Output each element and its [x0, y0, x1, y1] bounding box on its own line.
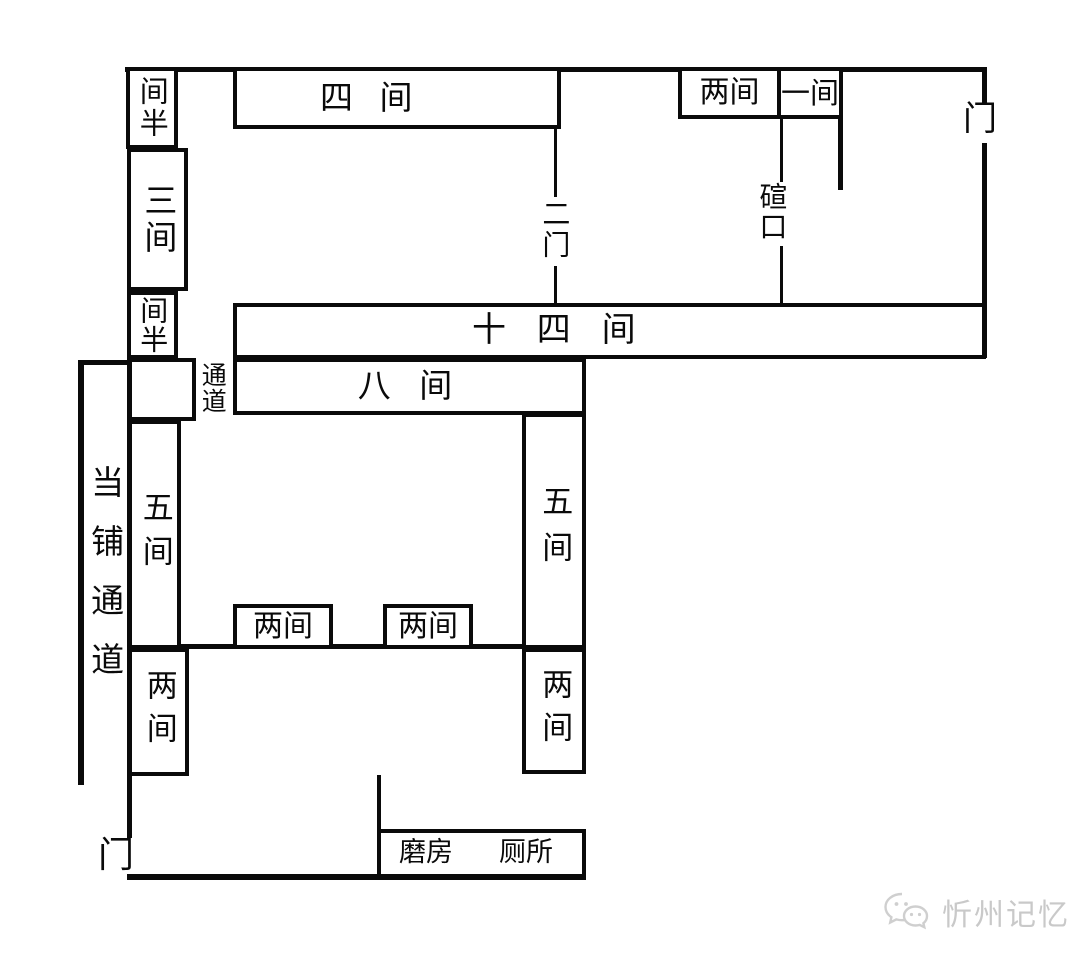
passage-strip-top-edge: [78, 360, 128, 365]
room-label-two-rooms-lower-left: 两间: [142, 669, 175, 755]
watermark-text: 忻州记忆: [942, 890, 1070, 934]
arch-opening-label: 碹口: [757, 182, 786, 242]
gate-label-top: 门: [963, 102, 997, 138]
room-label-fourteen-rooms: 十 四 间: [472, 313, 646, 349]
gate-label-bottom: 门: [98, 837, 134, 875]
one-room-side-line: [838, 117, 843, 190]
room-label-two-rooms-top: 两间: [699, 77, 759, 109]
room-two-rooms-top: 两间: [682, 71, 777, 115]
room-two-rooms-lower-left: 两间: [128, 648, 189, 776]
room-half-room-mid: 间半: [127, 291, 178, 359]
second-gate-line-lower: [554, 266, 557, 304]
room-one-room: 一间: [777, 71, 839, 115]
room-five-rooms-left: 五间: [128, 420, 181, 649]
room-half-room-top: 间半: [126, 67, 178, 149]
room-label-two-rooms-court-2: 两间: [398, 611, 458, 643]
room-label-half-room-top: 间半: [137, 76, 167, 140]
pawnshop-passage-label: 当铺通道: [87, 465, 122, 701]
room-five-rooms-right: 五间: [522, 413, 586, 649]
watermark: 忻州记忆: [882, 890, 1070, 934]
room-label-two-rooms-lower-right: 两间: [538, 668, 571, 754]
wechat-icon: [882, 891, 934, 933]
room-mill-toilet: 磨房 厕所: [377, 829, 586, 878]
second-gate-line-upper: [554, 128, 557, 197]
room-two-rooms-one-room: 两间 一间: [678, 67, 843, 119]
arch-line-upper: [780, 117, 783, 182]
room-label-two-rooms-court-1: 两间: [253, 611, 313, 643]
room-four-rooms: 四 间: [233, 67, 561, 129]
room-label-three-rooms: 三间: [140, 183, 175, 257]
room-fourteen-rooms: 十 四 间: [233, 303, 986, 359]
room-two-rooms-lower-right: 两间: [522, 648, 586, 774]
second-gate-label: 二门: [540, 199, 569, 261]
room-label-eight-rooms: 八 间: [358, 369, 462, 404]
room-three-rooms: 三间: [127, 148, 188, 291]
room-label-five-rooms-right: 五间: [538, 485, 571, 577]
room-two-rooms-court-2: 两间: [383, 604, 473, 649]
room-label-five-rooms-left: 五间: [138, 491, 171, 579]
passage-box: [128, 358, 196, 421]
courtyard-line: [128, 644, 586, 649]
room-label-mill: 磨房: [399, 839, 453, 867]
room-two-rooms-court-1: 两间: [233, 604, 333, 649]
room-label-toilet: 厕所: [499, 839, 553, 867]
room-label-half-room-mid: 间半: [138, 296, 167, 354]
left-outer-wall: [78, 360, 84, 785]
room-label-one-room: 一间: [781, 78, 839, 108]
arch-line-lower: [780, 246, 783, 304]
floor-plan: 间半 三间 间半 四 间 两间 一间 十 四 间 八 间 五间 五间 两间 两间…: [0, 0, 1080, 964]
room-eight-rooms: 八 间: [233, 358, 586, 415]
room-label-four-rooms: 四 间: [320, 81, 421, 116]
passage-label: 通道: [199, 362, 225, 414]
